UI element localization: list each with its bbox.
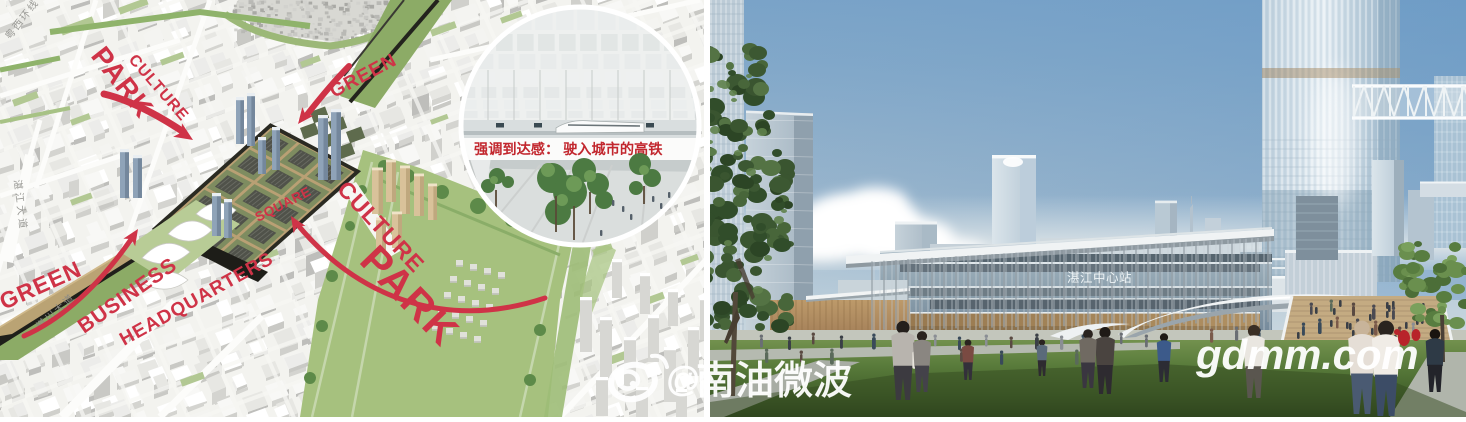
svg-text:湛江中心站: 湛江中心站 — [1067, 270, 1132, 285]
svg-text:gdmm.com: gdmm.com — [1195, 331, 1418, 378]
svg-text:南油微波: 南油微波 — [696, 360, 852, 403]
